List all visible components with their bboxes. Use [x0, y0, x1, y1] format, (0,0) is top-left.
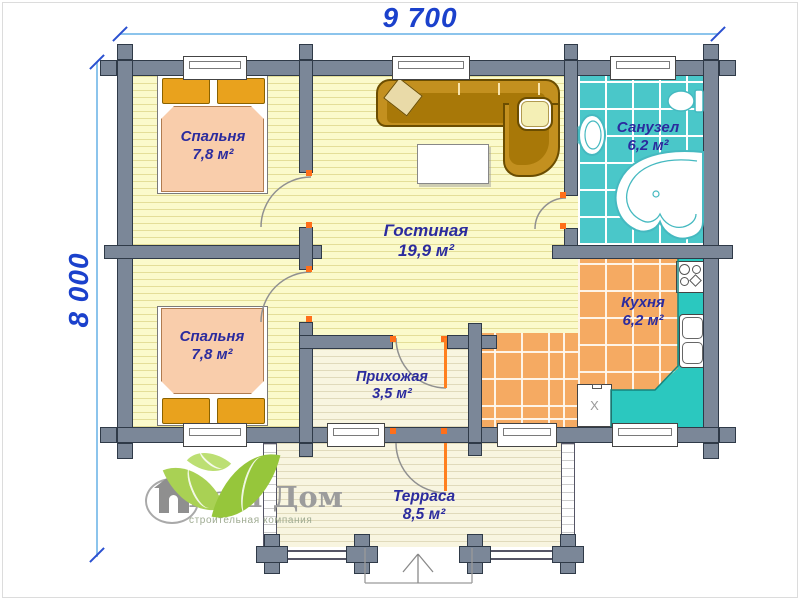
door-jamb-marker: [306, 266, 312, 272]
entrance-steps: [365, 548, 472, 583]
wall-bathroom-south: [552, 245, 733, 259]
log-stub: [468, 443, 482, 456]
terrace-railing-bottom: [281, 550, 351, 560]
room-area: 8,5 м²: [344, 506, 504, 524]
fridge-handle: [592, 384, 602, 389]
room-area: 6,2 м²: [583, 312, 703, 330]
terrace-railing-right: [561, 443, 575, 547]
door-jamb-marker: [441, 428, 447, 434]
room-name: Терраса: [344, 488, 504, 506]
logo: Ваш Дом строительная компания: [140, 438, 320, 538]
dimension-line-left: [96, 62, 98, 557]
wall-hallway-east: [468, 323, 482, 443]
terrace-railing-bottom: [491, 550, 555, 560]
terrace-post: [552, 546, 584, 563]
door-jamb-marker: [390, 428, 396, 434]
terrace-post: [256, 546, 288, 563]
room-label-kitchen: Кухня 6,2 м²: [583, 294, 703, 329]
room-label-bedroom-1: Спальня 7,8 м²: [153, 128, 273, 163]
dimension-label-width: 9 700: [320, 2, 520, 34]
burner-icon: [692, 265, 701, 274]
log-stub: [117, 44, 133, 60]
floor-bathroom: [578, 76, 703, 245]
log-stub: [703, 443, 719, 459]
room-name: Прихожая: [322, 369, 462, 386]
room-label-living: Гостиная 19,9 м²: [346, 221, 506, 261]
room-label-hallway: Прихожая 3,5 м²: [322, 369, 462, 403]
blanket-fold: [161, 381, 174, 394]
room-label-terrace: Терраса 8,5 м²: [344, 488, 504, 525]
pillow-icon: [217, 78, 265, 104]
blanket-fold: [251, 381, 264, 394]
wall-hallway-north: [299, 335, 393, 349]
log-stub: [564, 44, 578, 60]
room-name: Санузел: [588, 119, 708, 137]
room-area: 7,8 м²: [152, 346, 272, 364]
door-jamb-marker: [306, 170, 312, 176]
window: [610, 56, 676, 80]
wall-interior: [299, 60, 313, 173]
side-table: [517, 97, 553, 131]
wall-interior: [299, 227, 313, 270]
log-stub: [719, 427, 736, 443]
pillow-icon: [162, 78, 210, 104]
door-jamb-marker: [560, 223, 566, 229]
window: [392, 56, 470, 80]
fridge: X: [577, 384, 612, 427]
terrace-post: [346, 546, 378, 563]
log-stub: [100, 60, 117, 76]
coffee-table: [417, 144, 489, 184]
room-name: Спальня: [152, 328, 272, 346]
room-area: 6,2 м²: [588, 137, 708, 155]
wall-bedroom-divider: [104, 245, 322, 259]
terrace-post: [459, 546, 491, 563]
fridge-label: X: [590, 398, 599, 413]
door-jamb-marker: [306, 222, 312, 228]
entrance-arrow-icon: [403, 554, 433, 583]
door-jamb-marker: [560, 192, 566, 198]
window: [183, 56, 247, 80]
door-leaf: [444, 443, 447, 491]
room-label-bathroom: Санузел 6,2 м²: [588, 119, 708, 154]
log-stub: [100, 427, 117, 443]
blanket-fold: [161, 106, 174, 119]
door-jamb-marker: [390, 336, 396, 342]
room-area: 3,5 м²: [322, 386, 462, 403]
dimension-label-height: 8 000: [63, 245, 93, 335]
burner-icon: [679, 264, 690, 275]
sink-bowl: [682, 342, 703, 364]
log-stub: [117, 443, 133, 459]
burner-icon: [680, 277, 689, 286]
pillow-icon: [162, 398, 210, 424]
sofa-back-cushions: [420, 83, 546, 95]
pillow-icon: [217, 398, 265, 424]
door-jamb-marker: [306, 316, 312, 322]
blanket-fold: [251, 106, 264, 119]
window: [327, 423, 385, 447]
room-label-bedroom-2: Спальня 7,8 м²: [152, 328, 272, 363]
window: [612, 423, 678, 447]
log-stub: [703, 44, 719, 60]
log-stub: [299, 44, 313, 60]
room-area: 19,9 м²: [346, 241, 506, 261]
room-name: Кухня: [583, 294, 703, 312]
floor-plan: X: [0, 0, 800, 600]
room-area: 7,8 м²: [153, 146, 273, 164]
room-name: Гостиная: [346, 221, 506, 241]
log-stub: [719, 60, 736, 76]
window: [497, 423, 557, 447]
wall-bathroom: [564, 60, 578, 196]
room-name: Спальня: [153, 128, 273, 146]
